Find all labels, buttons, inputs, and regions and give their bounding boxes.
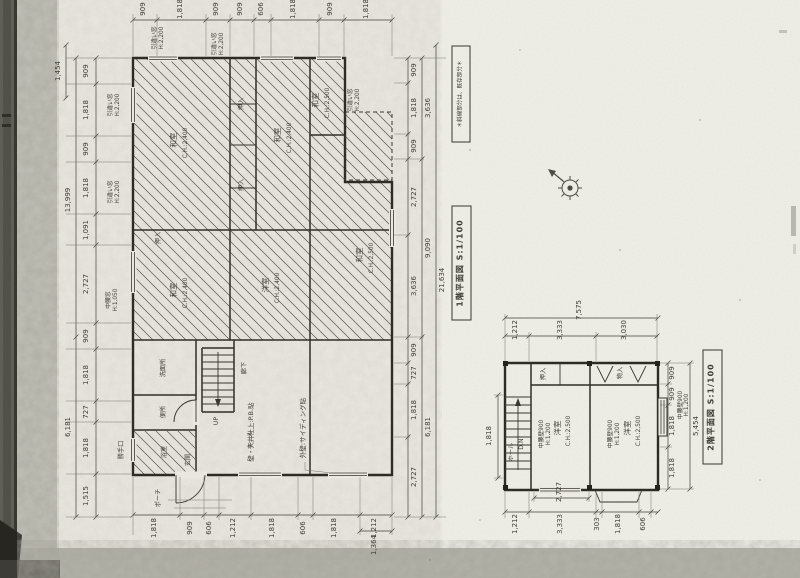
scan-grain-overlay [0, 0, 800, 578]
scanned-floorplan-sheet: 909 1,818 909 909 606 1,818 909 1,818 90… [0, 0, 800, 578]
floorplan-drawing: 909 1,818 909 909 606 1,818 909 1,818 90… [0, 0, 800, 578]
